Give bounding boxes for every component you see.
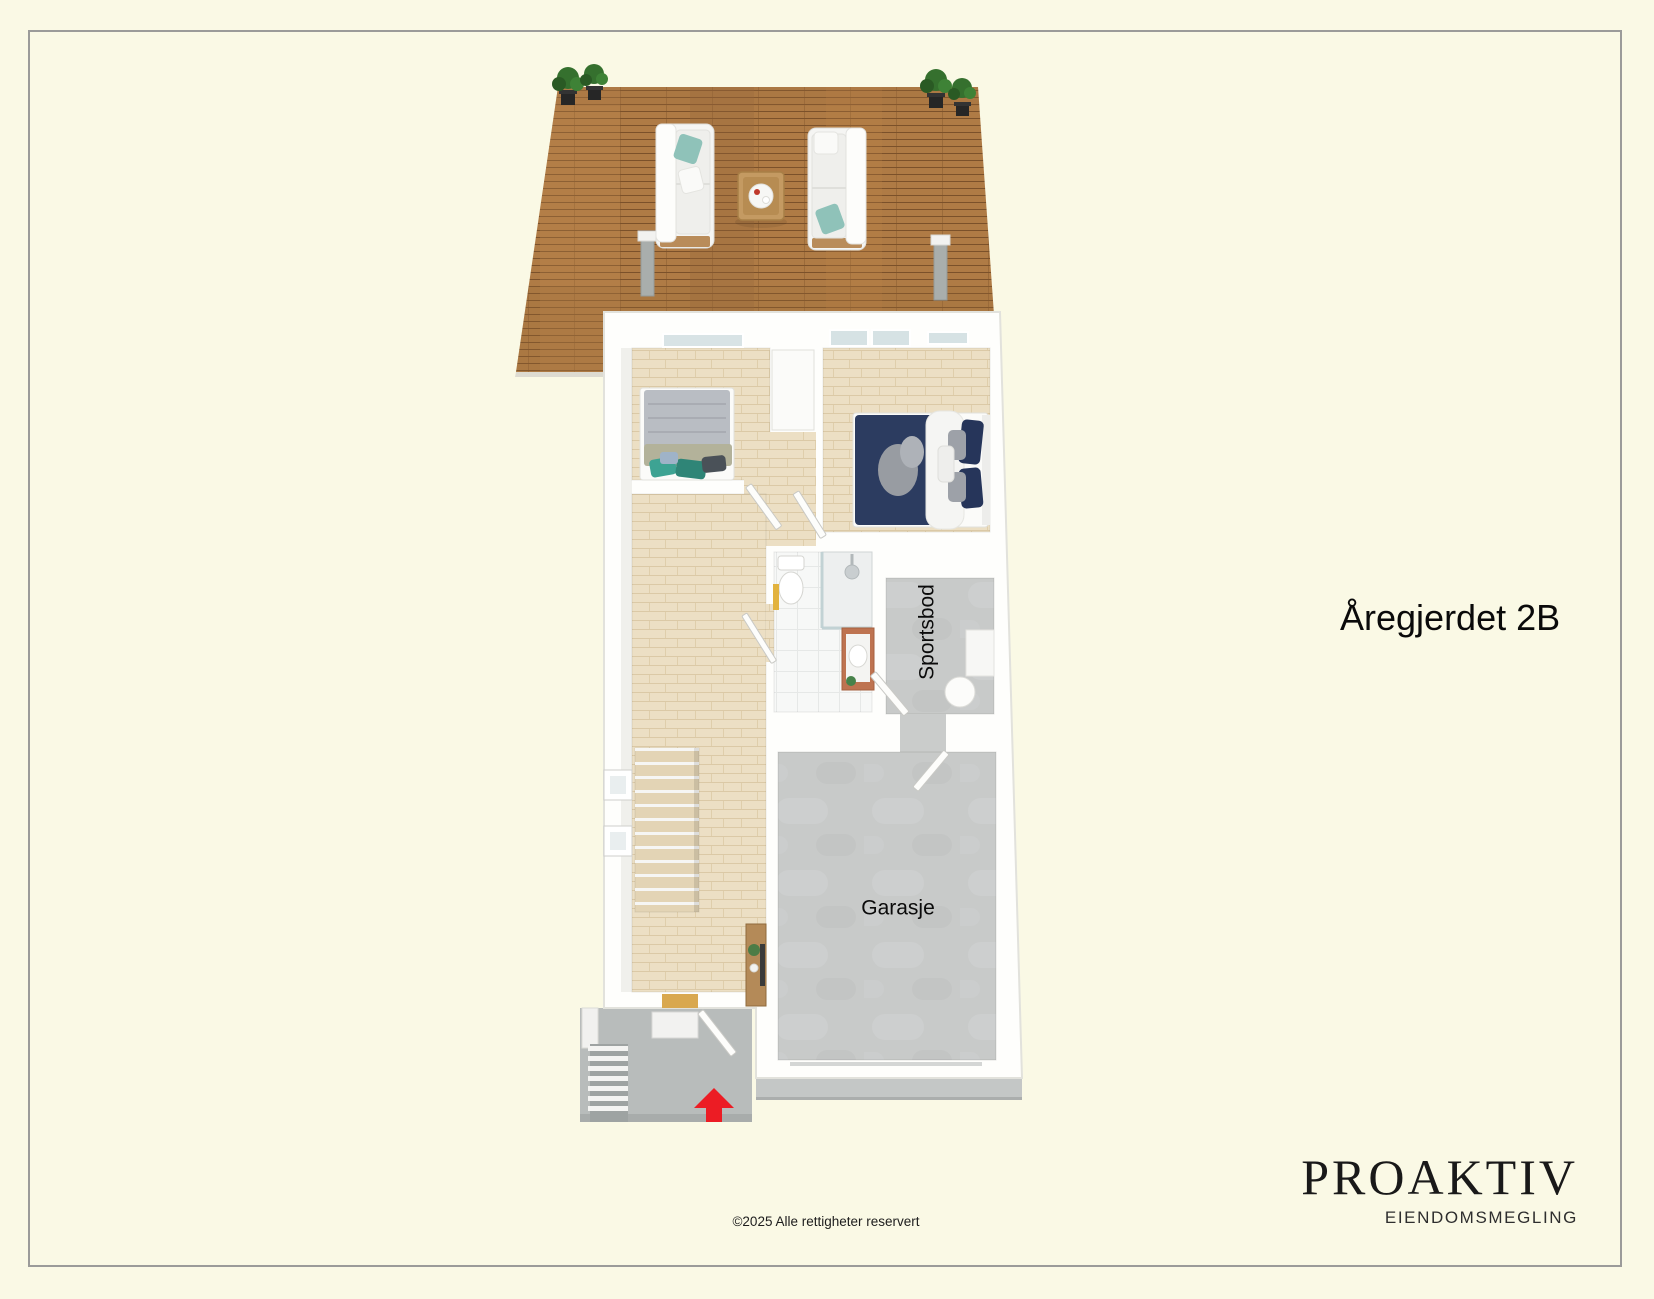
left-wall-face [621,348,632,992]
plant [846,676,856,686]
floorplan-render [0,0,1654,1299]
brand-logo: PROAKTIV EIENDOMSMEGLING [1301,1152,1578,1226]
bed-double [853,411,990,529]
copyright-text: ©2025 Alle rettigheter reservert [732,1214,919,1229]
window-glass [610,832,626,850]
bed-single [640,388,734,480]
window-glass [928,332,968,344]
page-title: Åregjerdet 2B [1340,600,1560,636]
vanity [842,628,874,690]
wardrobe [772,350,814,430]
window-glass [663,334,743,347]
room-label-garasje: Garasje [861,898,935,919]
deck-post-left [638,231,657,296]
towel [773,584,779,610]
exterior-stairs [588,1044,628,1122]
deck-sofa-right [808,128,866,250]
shower [822,552,872,628]
front-door-threshold [662,994,698,1008]
window-glass [610,776,626,794]
sliding-door-glass [830,330,868,346]
brand-name: PROAKTIV [1301,1152,1578,1202]
garage-doorway [900,714,946,754]
room-label-sportsbod: Sportsbod [917,584,938,680]
storage-shelf [966,630,994,676]
sliding-door-glass [872,330,910,346]
hallway-floor [632,494,766,992]
garage-apron-edge [756,1097,1022,1100]
garage-door-sill [790,1062,982,1066]
front-door-step [652,1012,698,1038]
desk-chair [760,944,765,986]
plant [748,944,760,956]
staircase [635,748,699,912]
page-canvas: Sportsbod Garasje Åregjerdet 2B ©2025 Al… [0,0,1654,1299]
water-heater [945,677,975,707]
deck-coffee-table [735,172,787,228]
building [604,312,1022,1078]
brand-tagline: EIENDOMSMEGLING [1301,1209,1578,1226]
deck-edge-face [515,372,604,377]
deck-sofa-left [656,124,714,248]
toilet [778,556,804,604]
garage-apron [756,1078,1022,1099]
deck-post-right [931,235,950,300]
hall-desk [746,924,766,1006]
